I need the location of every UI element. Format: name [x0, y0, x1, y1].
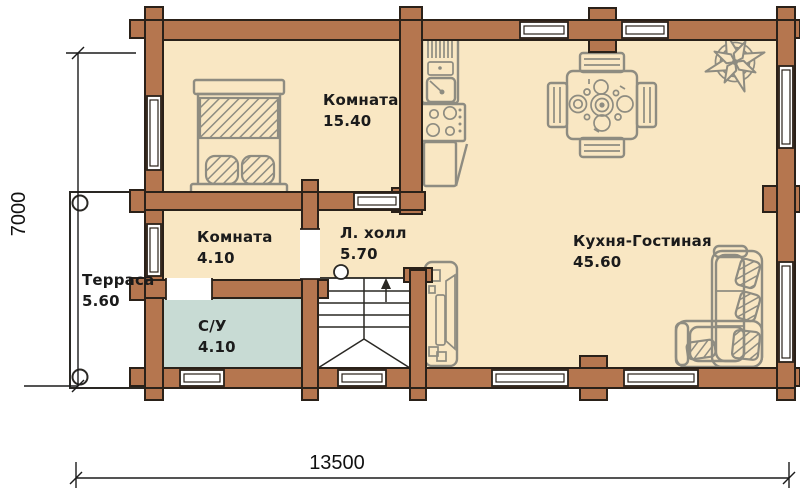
room-area: 4.10 — [197, 248, 273, 269]
room-label-bedroom: Комната 15.40 — [323, 90, 399, 132]
bed-icon — [191, 80, 287, 193]
room-name: Л. холл — [340, 223, 407, 244]
room-area: 15.40 — [323, 111, 399, 132]
room-area: 5.60 — [82, 291, 154, 312]
room-name: Кухня-Гостиная — [573, 231, 712, 252]
room-label-kitchen-living: Кухня-Гостиная 45.60 — [573, 231, 712, 273]
room-label-bathroom: С/У 4.10 — [198, 316, 236, 358]
room-label-small-room: Комната 4.10 — [197, 227, 273, 269]
room-area: 4.10 — [198, 337, 236, 358]
room-name: С/У — [198, 316, 236, 337]
dimension-height-label: 7000 — [7, 174, 31, 254]
room-name: Комната — [197, 227, 273, 248]
dimension-width-label: 13500 — [262, 451, 412, 475]
room-area: 5.70 — [340, 244, 407, 265]
room-area: 45.60 — [573, 252, 712, 273]
room-name: Терраса — [82, 270, 154, 291]
room-label-terrace: Терраса 5.60 — [82, 270, 154, 312]
room-label-stair-hall: Л. холл 5.70 — [340, 223, 407, 265]
floor-plan: Комната 15.40 Комната 4.10 Л. холл 5.70 … — [0, 0, 800, 497]
stairs-icon — [318, 265, 410, 368]
room-name: Комната — [323, 90, 399, 111]
